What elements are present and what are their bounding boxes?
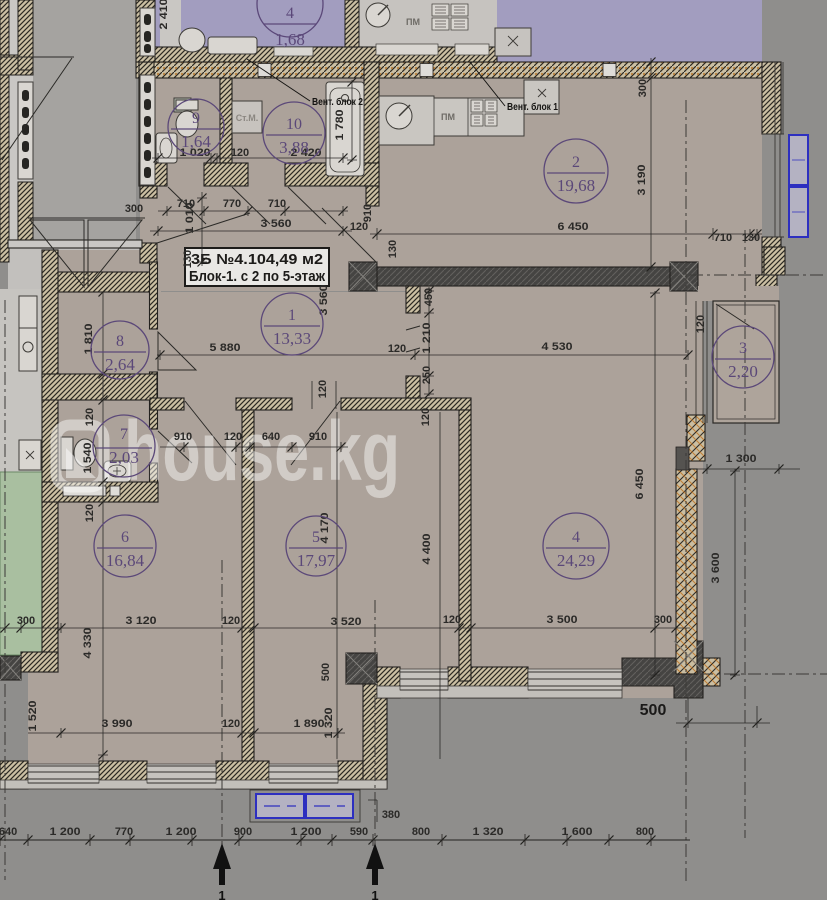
svg-text:1 300: 1 300 [726,453,757,465]
svg-text:ПМ: ПМ [441,112,455,122]
svg-text:1: 1 [218,888,225,900]
svg-text:380: 380 [382,809,400,821]
svg-text:4 330: 4 330 [82,628,94,659]
svg-text:1 320: 1 320 [323,708,335,739]
svg-text:Вент. блок 1: Вент. блок 1 [507,101,558,113]
svg-text:1 890: 1 890 [294,718,325,730]
svg-text:1 200: 1 200 [166,826,197,838]
svg-text:1 320: 1 320 [473,826,504,838]
svg-text:120: 120 [84,504,96,522]
svg-text:300: 300 [637,79,649,97]
svg-text:640: 640 [0,826,17,838]
svg-text:590: 590 [350,826,368,838]
svg-text:710: 710 [268,198,286,210]
svg-text:19,68: 19,68 [557,176,595,195]
svg-text:120: 120 [231,147,249,159]
svg-text:1 200: 1 200 [291,826,322,838]
svg-text:5: 5 [312,529,320,546]
svg-text:16,84: 16,84 [106,551,145,570]
svg-text:300: 300 [125,203,143,215]
svg-text:4: 4 [286,5,294,22]
svg-text:1,64: 1,64 [181,132,211,151]
svg-text:2,03: 2,03 [109,448,139,467]
svg-text:640: 640 [262,431,280,443]
svg-text:24,29: 24,29 [557,551,595,570]
svg-text:4 530: 4 530 [542,341,573,353]
svg-text:1: 1 [371,888,378,900]
svg-text:6 450: 6 450 [634,469,646,500]
svg-text:120: 120 [443,614,461,626]
svg-text:250: 250 [421,366,433,384]
svg-text:770: 770 [223,198,241,210]
svg-text:7: 7 [120,426,128,443]
svg-text:1 780: 1 780 [334,110,346,141]
svg-text:Ст.М.: Ст.М. [236,113,259,123]
svg-text:10: 10 [286,116,302,133]
svg-text:4: 4 [572,529,580,546]
svg-text:Вент. блок 2: Вент. блок 2 [312,96,363,108]
svg-text:800: 800 [636,826,654,838]
svg-text:3: 3 [739,340,747,357]
svg-text:130: 130 [742,232,760,244]
svg-text:120: 120 [420,408,432,426]
svg-text:770: 770 [115,826,133,838]
svg-text:120: 120 [388,343,406,355]
svg-text:3 190: 3 190 [636,165,648,196]
svg-text:3 990: 3 990 [102,718,133,730]
svg-text:ПМ: ПМ [406,17,420,27]
svg-text:120: 120 [84,408,96,426]
svg-text:120: 120 [222,718,240,730]
svg-text:5 880: 5 880 [210,342,241,354]
svg-text:3 560: 3 560 [261,218,292,230]
svg-text:120: 120 [222,615,240,627]
svg-text:8: 8 [116,333,124,350]
svg-text:910: 910 [362,204,374,222]
svg-text:6 450: 6 450 [558,221,589,233]
svg-text:17,97: 17,97 [297,551,336,570]
svg-text:120: 120 [695,315,707,333]
svg-text:3Б №4.104,49 м2: 3Б №4.104,49 м2 [191,252,323,268]
svg-text:3 520: 3 520 [331,616,362,628]
svg-text:1: 1 [288,307,296,324]
svg-text:1 200: 1 200 [50,826,81,838]
svg-text:300: 300 [654,614,672,626]
svg-text:1,68: 1,68 [275,30,305,49]
svg-text:2: 2 [572,154,580,171]
svg-text:2,20: 2,20 [728,362,758,381]
svg-text:Блок-1. с 2 по 5-этаж: Блок-1. с 2 по 5-этаж [189,269,326,285]
svg-text:1 540: 1 540 [82,443,94,474]
svg-text:1 600: 1 600 [562,826,593,838]
svg-text:130: 130 [182,250,194,268]
svg-text:house.kg: house.kg [124,404,400,498]
svg-text:450: 450 [423,288,435,306]
svg-text:13,33: 13,33 [273,329,311,348]
svg-text:500: 500 [640,702,667,719]
svg-text:910: 910 [309,431,327,443]
svg-text:800: 800 [412,826,430,838]
svg-text:120: 120 [224,431,242,443]
svg-text:130: 130 [387,240,399,258]
svg-text:300: 300 [17,615,35,627]
svg-text:120: 120 [317,380,329,398]
svg-text:900: 900 [234,826,252,838]
svg-text:4 400: 4 400 [421,534,433,565]
svg-text:1 210: 1 210 [421,323,433,354]
svg-text:710: 710 [714,232,732,244]
svg-text:9: 9 [192,110,200,127]
svg-text:3 500: 3 500 [547,614,578,626]
svg-text:3,88: 3,88 [279,138,309,157]
svg-text:1 010: 1 010 [184,203,196,234]
svg-text:910: 910 [174,431,192,443]
svg-text:3 120: 3 120 [126,615,157,627]
svg-text:2,64: 2,64 [105,355,135,374]
svg-text:3 600: 3 600 [710,553,722,584]
svg-text:6: 6 [121,529,129,546]
svg-text:500: 500 [320,663,332,681]
svg-text:2 410: 2 410 [158,0,170,30]
svg-text:1 520: 1 520 [27,701,39,732]
